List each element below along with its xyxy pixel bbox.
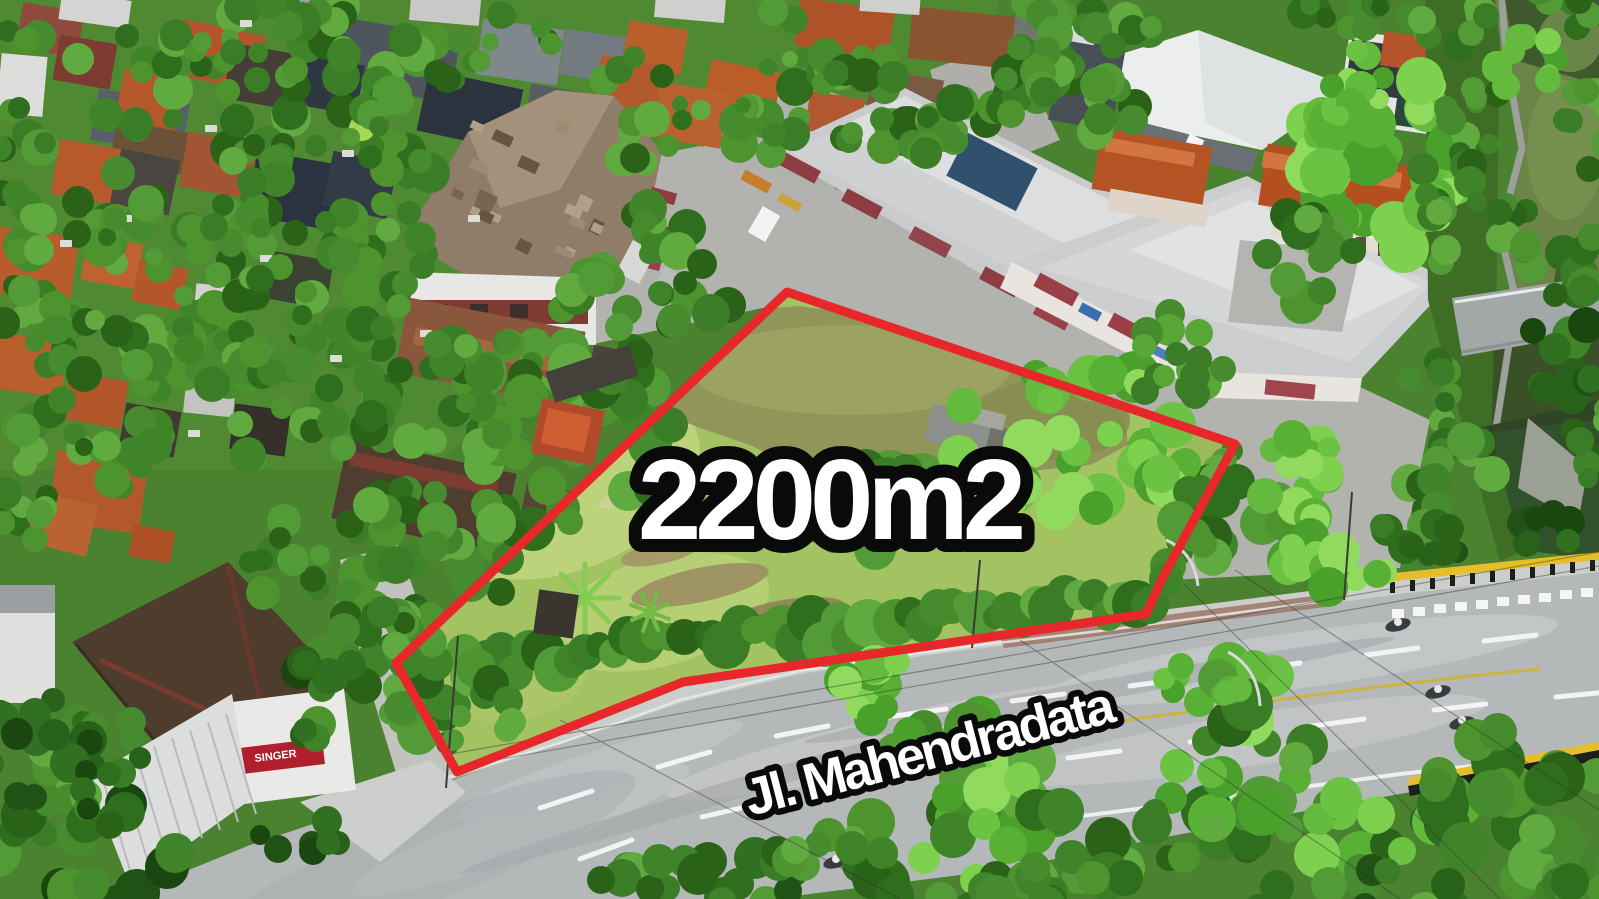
svg-text:2200m2: 2200m2 <box>638 437 1022 564</box>
